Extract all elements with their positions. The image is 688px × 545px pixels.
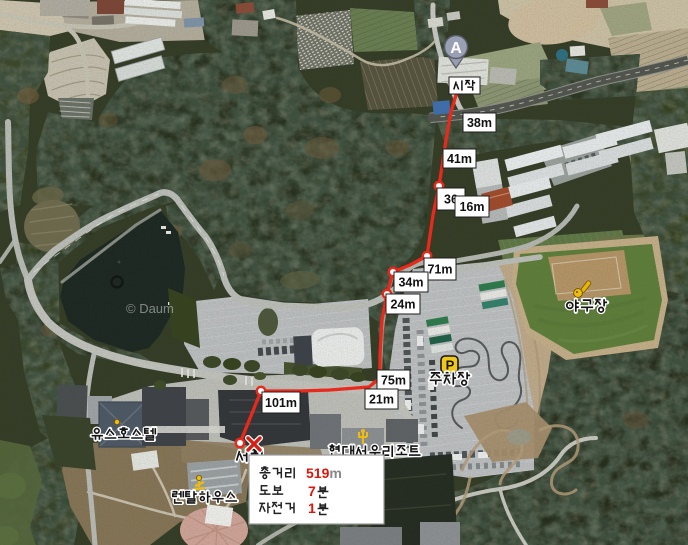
- svg-text:A: A: [450, 40, 462, 57]
- svg-text:7: 7: [308, 483, 316, 499]
- svg-text:71m: 71m: [427, 262, 452, 276]
- svg-text:1: 1: [308, 500, 316, 516]
- svg-text:519m: 519m: [306, 465, 342, 481]
- svg-text:21m: 21m: [369, 392, 394, 406]
- svg-text:P: P: [446, 358, 455, 373]
- svg-text:16m: 16m: [459, 200, 484, 214]
- svg-text:24m: 24m: [390, 297, 415, 311]
- svg-text:41m: 41m: [447, 152, 472, 166]
- svg-text:101m: 101m: [265, 396, 297, 410]
- svg-text:75m: 75m: [381, 373, 406, 387]
- svg-text:© Daum: © Daum: [126, 301, 174, 316]
- svg-text:34m: 34m: [398, 275, 423, 289]
- svg-text:38m: 38m: [467, 116, 492, 130]
